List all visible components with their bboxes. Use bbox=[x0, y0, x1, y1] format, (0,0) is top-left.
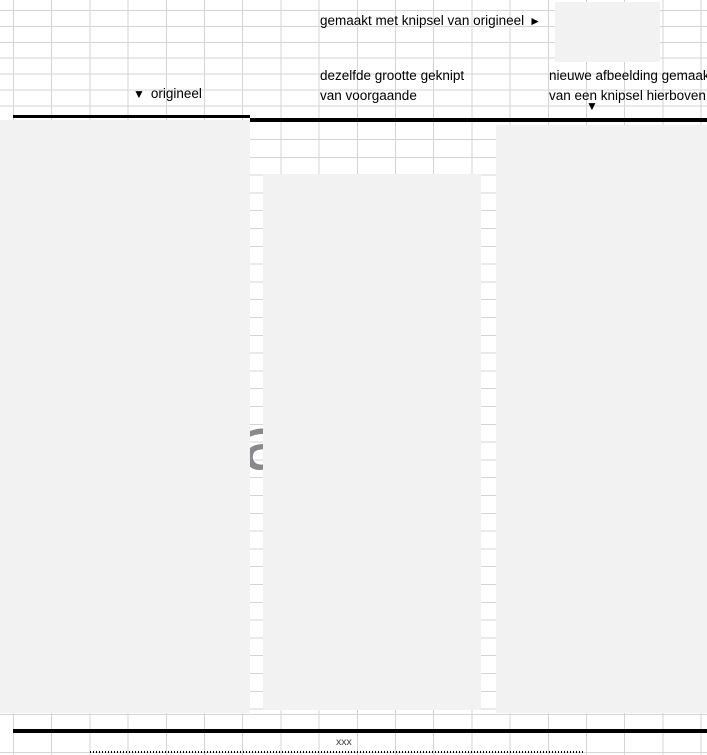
label-made-with-snip-text: gemaakt met knipsel van origineel bbox=[320, 13, 524, 28]
down-arrow-marker: ▼ bbox=[586, 100, 598, 113]
horizontal-gridline-bottom-1 bbox=[0, 714, 707, 715]
label-same-size-line2: van voorgaande bbox=[320, 86, 464, 106]
label-same-size-crop: dezelfde grootte geknipt van voorgaande bbox=[320, 66, 464, 105]
label-new-image-line1: nieuwe afbeelding gemaakt bbox=[549, 66, 707, 86]
down-arrow-icon: ▼ bbox=[133, 87, 145, 101]
thick-border-bottom bbox=[13, 729, 707, 733]
pasted-image-new-from-snip[interactable] bbox=[496, 125, 707, 713]
label-new-image-line2: van een knipsel hierboven bbox=[549, 86, 707, 106]
pasted-image-original[interactable] bbox=[0, 120, 250, 713]
label-original-text: origineel bbox=[151, 86, 202, 101]
thick-border-top-right bbox=[250, 118, 707, 122]
label-original: ▼origineel bbox=[133, 86, 202, 102]
bottom-note: xxx bbox=[336, 736, 352, 749]
snip-thumbnail-image[interactable] bbox=[555, 2, 660, 62]
label-new-image: nieuwe afbeelding gemaakt van een knipse… bbox=[549, 66, 707, 105]
spreadsheet-canvas: { "colors": { "gridline": "#d4d4d4", "im… bbox=[0, 0, 707, 755]
label-made-with-snip: gemaakt met knipsel van origineel► bbox=[231, 13, 541, 29]
thick-border-top-left bbox=[13, 115, 250, 118]
dotted-page-break-line bbox=[90, 751, 585, 753]
right-arrow-icon: ► bbox=[529, 14, 541, 28]
pasted-image-same-size-crop[interactable] bbox=[263, 174, 481, 710]
label-same-size-line1: dezelfde grootte geknipt bbox=[320, 66, 464, 86]
